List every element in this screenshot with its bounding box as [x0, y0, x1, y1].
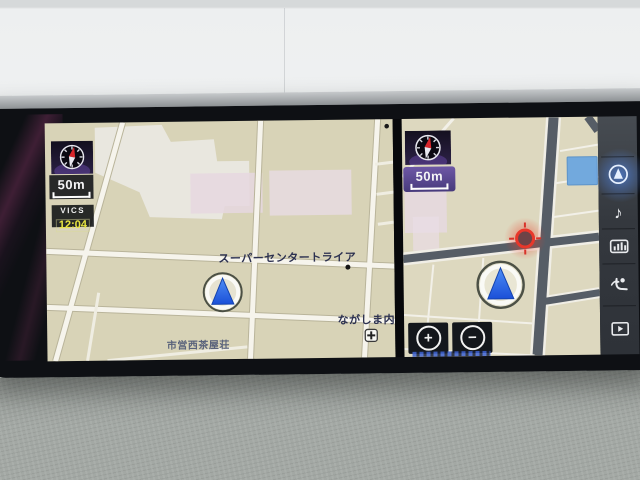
scale-bracket [52, 192, 90, 198]
seat-airflow-icon [609, 275, 629, 292]
zoom-out-button[interactable]: − [452, 322, 492, 353]
sidebar-button-video[interactable] [600, 311, 639, 345]
nav-arrow-circle-icon [607, 163, 629, 185]
hospital-icon [364, 328, 378, 342]
scale-bracket [410, 183, 448, 189]
sidebar-button-levels[interactable] [599, 229, 638, 263]
poi-label-housing: 市営西茶屋荘 [163, 336, 233, 352]
poi-label-store: スーパーセンタートライア [204, 248, 370, 266]
map-scale-button[interactable]: 50m [403, 166, 455, 192]
sidebar-icon-strip: ♪ [598, 116, 640, 354]
sidebar-button-navigation[interactable] [598, 157, 637, 191]
music-note-icon: ♪ [614, 204, 623, 221]
sidebar-button-seat-climate[interactable] [599, 266, 638, 300]
vics-time: 12:04 [56, 219, 90, 232]
photo-scene: 50m VICS 12:04 スーパーセンタートライア ながしま内科 [0, 0, 640, 480]
vics-indicator: VICS 12:04 [52, 205, 94, 228]
current-position-icon [474, 258, 527, 311]
plus-icon: + [416, 326, 441, 351]
poi-label-clinic: ながしま内科 [337, 311, 396, 328]
compass-icon [405, 130, 451, 165]
clipped-label-strip [412, 351, 490, 357]
current-position-icon [200, 270, 245, 315]
scale-label: 50m [58, 177, 86, 192]
poi-dot [345, 265, 350, 270]
equalizer-icon [609, 237, 629, 255]
compass-icon [51, 141, 93, 175]
vics-label: VICS [52, 206, 94, 216]
left-map-panel[interactable]: 50m VICS 12:04 スーパーセンタートライア ながしま内科 [45, 119, 396, 361]
video-screen-icon [610, 320, 630, 337]
building-pink-1 [190, 173, 262, 214]
nav-head-unit: 50m VICS 12:04 スーパーセンタートライア ながしま内科 [0, 88, 640, 378]
destination-marker-icon [503, 216, 548, 261]
building-pink-4 [413, 217, 439, 251]
minus-icon: − [460, 325, 485, 350]
scale-label: 50m [415, 168, 443, 183]
map-scale-button[interactable]: 50m [49, 175, 93, 200]
zoom-in-button[interactable]: + [408, 322, 448, 353]
nav-screen: 50m VICS 12:04 スーパーセンタートライア ながしま内科 [45, 116, 640, 361]
wall-seam [284, 8, 285, 98]
map-dot [384, 124, 389, 129]
building-pink-2 [269, 170, 352, 216]
right-map-panel[interactable]: 50m [402, 117, 601, 357]
sidebar-button-audio[interactable]: ♪ [599, 195, 638, 229]
screen-bezel: 50m VICS 12:04 スーパーセンタートライア ながしま内科 [0, 101, 640, 378]
separator [603, 305, 636, 306]
